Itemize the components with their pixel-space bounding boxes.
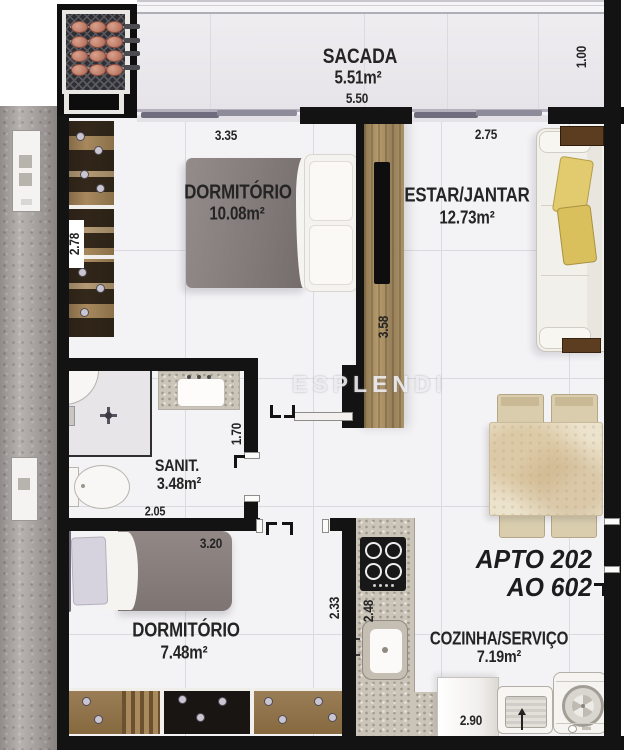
bed1-pillows bbox=[304, 154, 358, 292]
wall-left bbox=[57, 116, 69, 750]
wall-bath-right-upper bbox=[244, 358, 258, 457]
sliding-door-panel bbox=[141, 112, 219, 118]
floor-plan: SACADA 5.51m² 5.50 1.00 DORMITÓRIO 10.08… bbox=[0, 0, 624, 750]
hanger-knob bbox=[196, 713, 205, 722]
door-jamb bbox=[604, 566, 620, 573]
grid-line bbox=[538, 10, 539, 110]
hanger-knob bbox=[82, 697, 91, 706]
wall-bedroom2-top bbox=[57, 518, 260, 531]
fridge bbox=[437, 677, 499, 738]
hanger-knob bbox=[76, 132, 85, 141]
skewer-handle bbox=[124, 24, 140, 29]
dining-chair bbox=[551, 394, 598, 425]
cooktop-knob bbox=[373, 584, 376, 587]
toilet-bowl bbox=[74, 465, 130, 509]
utility-box-lower bbox=[11, 457, 38, 521]
utility-vent bbox=[19, 155, 32, 168]
hanger-knob bbox=[80, 170, 89, 179]
dim-dorm2-width: 3.20 bbox=[200, 535, 222, 551]
washer-control bbox=[568, 725, 577, 733]
tank-faucet-arrow-head bbox=[518, 708, 526, 715]
grid-line bbox=[447, 10, 448, 110]
meat-skewer bbox=[106, 36, 123, 48]
room-label-sacada: SACADA bbox=[323, 45, 397, 69]
utility-vent bbox=[18, 478, 30, 490]
pillow bbox=[309, 225, 353, 285]
faucet-dot bbox=[197, 375, 201, 379]
dim-dorm1-width: 3.35 bbox=[215, 127, 237, 143]
dim-sanit-pass: 1.70 bbox=[228, 423, 244, 445]
shower-enclosure bbox=[62, 368, 152, 457]
side-table bbox=[562, 338, 601, 353]
hanger-knob bbox=[78, 268, 87, 277]
hanger-knob bbox=[96, 284, 105, 293]
room-label-sanit: SANIT. bbox=[155, 456, 199, 476]
hanger-knob bbox=[218, 697, 227, 706]
unit-number-line2: AO 602 bbox=[429, 573, 592, 601]
meat-skewer bbox=[71, 36, 88, 48]
cooktop-knob bbox=[385, 584, 388, 587]
wall-bath-top bbox=[57, 358, 258, 371]
meat-skewer bbox=[89, 64, 106, 76]
hanger-knob bbox=[96, 184, 105, 193]
wardrobe-dark-section bbox=[164, 691, 250, 734]
burner bbox=[365, 563, 382, 580]
hanger-knob bbox=[328, 713, 337, 722]
washer-drum bbox=[562, 685, 604, 727]
room-label-dormitorio1: DORMITÓRIO bbox=[184, 182, 292, 205]
railing-line bbox=[137, 5, 604, 6]
utility-notch bbox=[21, 199, 32, 205]
hanger-knob bbox=[264, 697, 273, 706]
sliding-door-panel bbox=[217, 110, 297, 116]
sofa-seam bbox=[541, 275, 589, 276]
barbecue-niche bbox=[69, 94, 119, 110]
meat-skewer bbox=[89, 36, 106, 48]
utility-box-upper bbox=[12, 130, 41, 212]
cooktop bbox=[360, 537, 406, 591]
burner bbox=[385, 563, 402, 580]
room-label-estar: ESTAR/JANTAR bbox=[404, 185, 529, 208]
kitchen-sink bbox=[362, 620, 408, 680]
room-area-dormitorio1: 10.08m² bbox=[209, 204, 264, 225]
door-jamb bbox=[244, 452, 260, 459]
door-frame-mark bbox=[284, 405, 295, 418]
shower-drain bbox=[105, 412, 112, 419]
pocket-door bbox=[294, 412, 353, 421]
burner bbox=[385, 542, 402, 559]
door-jamb bbox=[322, 519, 329, 533]
meat-skewer bbox=[106, 64, 123, 76]
vanity-basin bbox=[177, 378, 225, 407]
vanity-counter bbox=[158, 371, 240, 410]
washer-top-line bbox=[556, 681, 604, 682]
wall-bath-right-lower bbox=[244, 500, 258, 518]
wardrobe-divider bbox=[250, 688, 254, 734]
wardrobe-shelf-divider bbox=[64, 205, 114, 209]
dim-estar-width: 2.75 bbox=[475, 126, 497, 142]
washing-machine bbox=[553, 672, 607, 734]
hanger-knob bbox=[314, 697, 323, 706]
dim-sacada-depth: 1.00 bbox=[573, 46, 589, 68]
bed2-pillow bbox=[71, 536, 108, 605]
meat-skewer bbox=[106, 50, 123, 62]
wall-bottom bbox=[57, 736, 624, 750]
door-frame-mark bbox=[234, 455, 245, 468]
door-frame-mark bbox=[266, 522, 277, 535]
meat-skewer bbox=[89, 21, 106, 33]
door-frame-mark bbox=[282, 522, 293, 535]
sink-drain bbox=[382, 647, 388, 653]
hanger-knob bbox=[94, 146, 103, 155]
sofa-cushion bbox=[557, 204, 598, 266]
hanger-knob bbox=[94, 715, 103, 724]
door-jamb bbox=[244, 495, 260, 502]
door-jamb bbox=[256, 519, 263, 533]
meat-skewer bbox=[89, 50, 106, 62]
dim-cozinha-depth: 2.48 bbox=[360, 600, 376, 622]
washer-control bbox=[582, 727, 591, 730]
tank-faucet-arrow-shaft bbox=[521, 714, 523, 730]
pillow bbox=[309, 161, 353, 221]
door-frame-mark bbox=[594, 583, 605, 596]
room-area-dormitorio2: 7.48m² bbox=[161, 643, 208, 664]
balcony-railing bbox=[137, 0, 604, 14]
grid-line bbox=[210, 10, 211, 110]
skewer-handle bbox=[124, 38, 140, 43]
room-area-sacada: 5.51m² bbox=[335, 68, 382, 89]
room-area-estar: 12.73m² bbox=[439, 208, 494, 229]
dim-dorm1-closet: 2.78 bbox=[66, 233, 82, 255]
shower-corner-shelf bbox=[64, 370, 99, 405]
dining-table bbox=[489, 422, 603, 516]
sofa-shelf bbox=[560, 126, 604, 146]
dim-estar-depth: 3.58 bbox=[375, 316, 391, 338]
watermark-logo: ESPLENDI bbox=[292, 371, 447, 398]
chair-backrest bbox=[555, 397, 593, 406]
unit-number: APTO 202 AO 602 bbox=[429, 545, 592, 601]
room-area-cozinha: 7.19m² bbox=[477, 647, 521, 667]
hanger-knob bbox=[80, 308, 89, 317]
tank-basin bbox=[505, 696, 547, 728]
sliding-door-panel bbox=[476, 110, 542, 116]
cooktop-knob bbox=[379, 584, 382, 587]
washer-bottom-line bbox=[556, 723, 604, 724]
wall-kitchen-left bbox=[342, 518, 356, 736]
room-area-sanit: 3.48m² bbox=[157, 474, 201, 494]
tv-screen bbox=[374, 162, 390, 284]
faucet-dot bbox=[207, 375, 211, 379]
door-frame-mark bbox=[270, 405, 281, 418]
dim-dorm2-depth: 2.33 bbox=[326, 597, 342, 619]
toilet-flush-dot bbox=[81, 484, 85, 488]
faucet-dot bbox=[187, 375, 191, 379]
dim-sanit-width: 2.05 bbox=[145, 504, 166, 519]
wall-top-center bbox=[300, 107, 412, 124]
chair-backrest bbox=[501, 397, 539, 406]
dim-sacada-width: 5.50 bbox=[346, 90, 368, 106]
hanger-knob bbox=[178, 695, 187, 704]
meat-skewer bbox=[71, 21, 88, 33]
meat-skewer bbox=[71, 50, 88, 62]
door-jamb bbox=[604, 518, 620, 525]
washer-drum-hub bbox=[581, 704, 585, 708]
wall-right bbox=[604, 0, 621, 750]
wardrobe-shelves bbox=[122, 691, 160, 734]
sliding-door-panel bbox=[414, 112, 478, 118]
dim-cozinha-width: 2.90 bbox=[460, 712, 482, 728]
burner bbox=[365, 542, 382, 559]
meat-skewer bbox=[71, 64, 88, 76]
dining-chair bbox=[497, 394, 544, 425]
room-label-dormitorio2: DORMITÓRIO bbox=[132, 620, 240, 643]
utility-vent bbox=[19, 173, 32, 186]
cooktop-knob bbox=[391, 584, 394, 587]
hanger-knob bbox=[278, 715, 287, 724]
meat-skewer bbox=[106, 21, 123, 33]
unit-number-line1: APTO 202 bbox=[429, 545, 592, 573]
skewer-handle bbox=[124, 65, 140, 70]
wardrobe-bedroom2 bbox=[66, 688, 345, 734]
skewer-handle bbox=[124, 51, 140, 56]
